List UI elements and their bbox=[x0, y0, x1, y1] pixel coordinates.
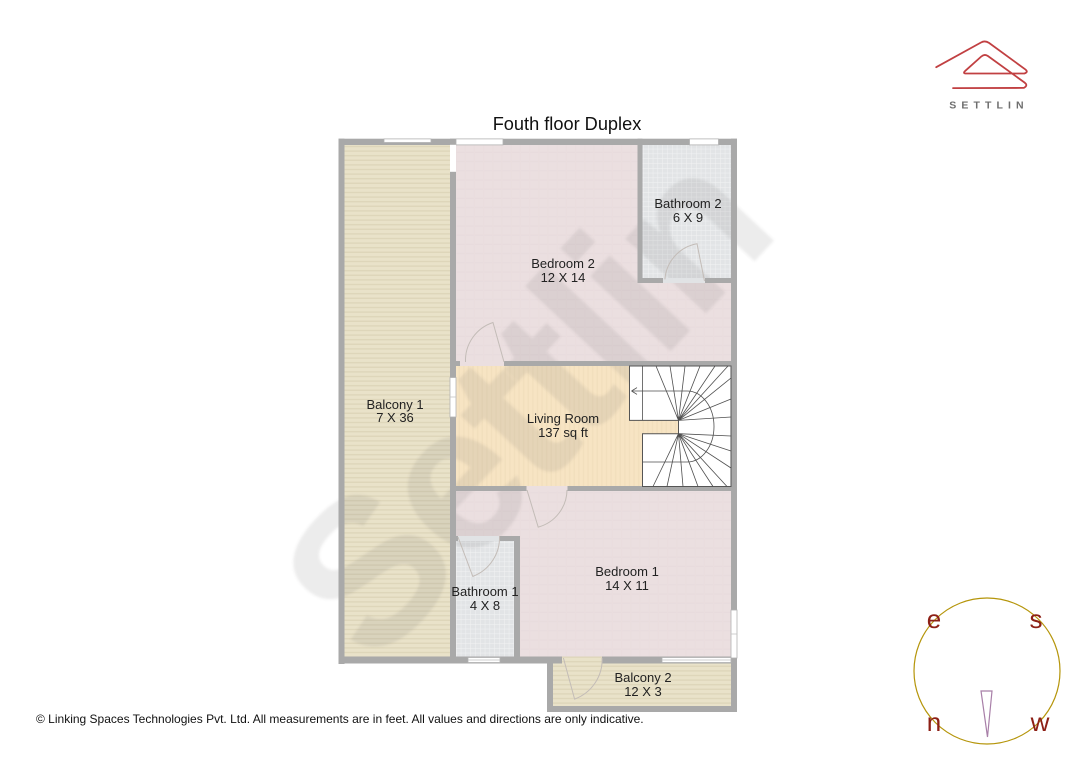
svg-text:4 X 8: 4 X 8 bbox=[470, 598, 500, 613]
svg-text:Bathroom 2: Bathroom 2 bbox=[654, 196, 721, 211]
svg-text:Bedroom 1: Bedroom 1 bbox=[595, 564, 659, 579]
svg-text:7 X 36: 7 X 36 bbox=[376, 410, 414, 425]
svg-text:Balcony 2: Balcony 2 bbox=[614, 670, 671, 685]
svg-text:e: e bbox=[927, 604, 941, 634]
svg-text:Living Room: Living Room bbox=[527, 411, 599, 426]
svg-text:© Linking Spaces Technologies: © Linking Spaces Technologies Pvt. Ltd. … bbox=[36, 712, 644, 726]
svg-text:12 X 3: 12 X 3 bbox=[624, 684, 662, 699]
svg-text:s: s bbox=[1030, 604, 1043, 634]
svg-text:Bedroom 2: Bedroom 2 bbox=[531, 256, 595, 271]
svg-text:w: w bbox=[1030, 707, 1050, 737]
svg-text:137 sq ft: 137 sq ft bbox=[538, 425, 588, 440]
svg-text:6 X 9: 6 X 9 bbox=[673, 210, 703, 225]
svg-text:14 X 11: 14 X 11 bbox=[605, 578, 649, 593]
svg-text:SETTLIN: SETTLIN bbox=[949, 100, 1028, 112]
svg-text:n: n bbox=[927, 707, 941, 737]
svg-text:Bathroom 1: Bathroom 1 bbox=[451, 584, 518, 599]
svg-text:12 X 14: 12 X 14 bbox=[541, 270, 586, 285]
